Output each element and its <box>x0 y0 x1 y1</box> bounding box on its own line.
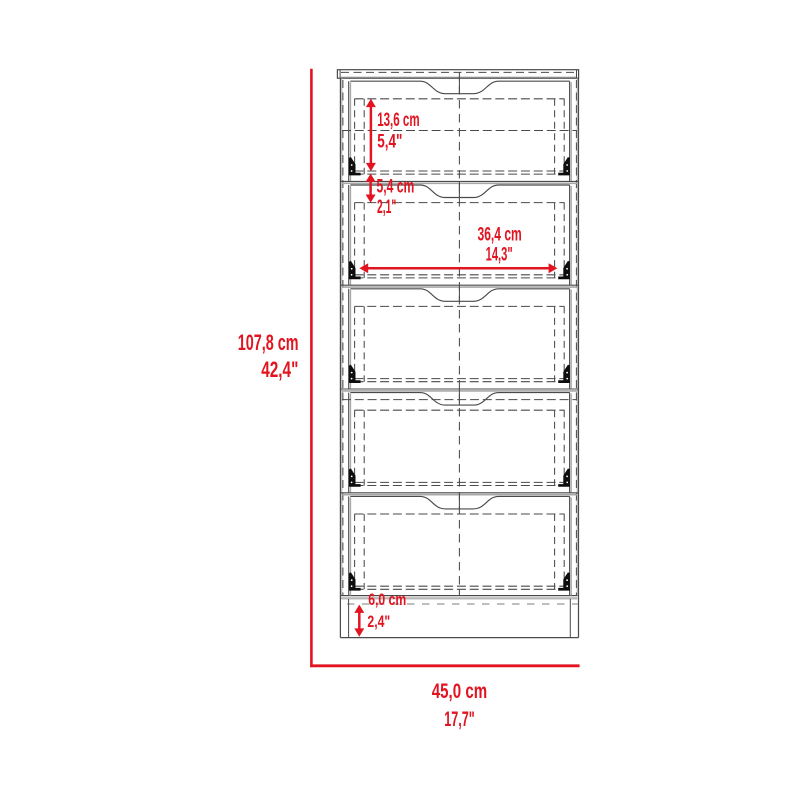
svg-text:14,3": 14,3" <box>486 244 513 266</box>
svg-text:13,6 cm: 13,6 cm <box>377 109 419 131</box>
svg-text:6,0 cm: 6,0 cm <box>368 591 406 609</box>
svg-text:45,0 cm: 45,0 cm <box>432 680 487 703</box>
svg-text:2,4": 2,4" <box>367 613 390 631</box>
svg-text:5,4": 5,4" <box>377 131 402 153</box>
svg-text:107,8 cm: 107,8 cm <box>238 330 299 355</box>
svg-text:17,7": 17,7" <box>444 708 475 731</box>
svg-text:42,4": 42,4" <box>261 357 298 382</box>
svg-text:36,4 cm: 36,4 cm <box>478 223 522 245</box>
svg-text:2,1": 2,1" <box>377 197 396 218</box>
svg-text:5,4 cm: 5,4 cm <box>377 177 415 198</box>
